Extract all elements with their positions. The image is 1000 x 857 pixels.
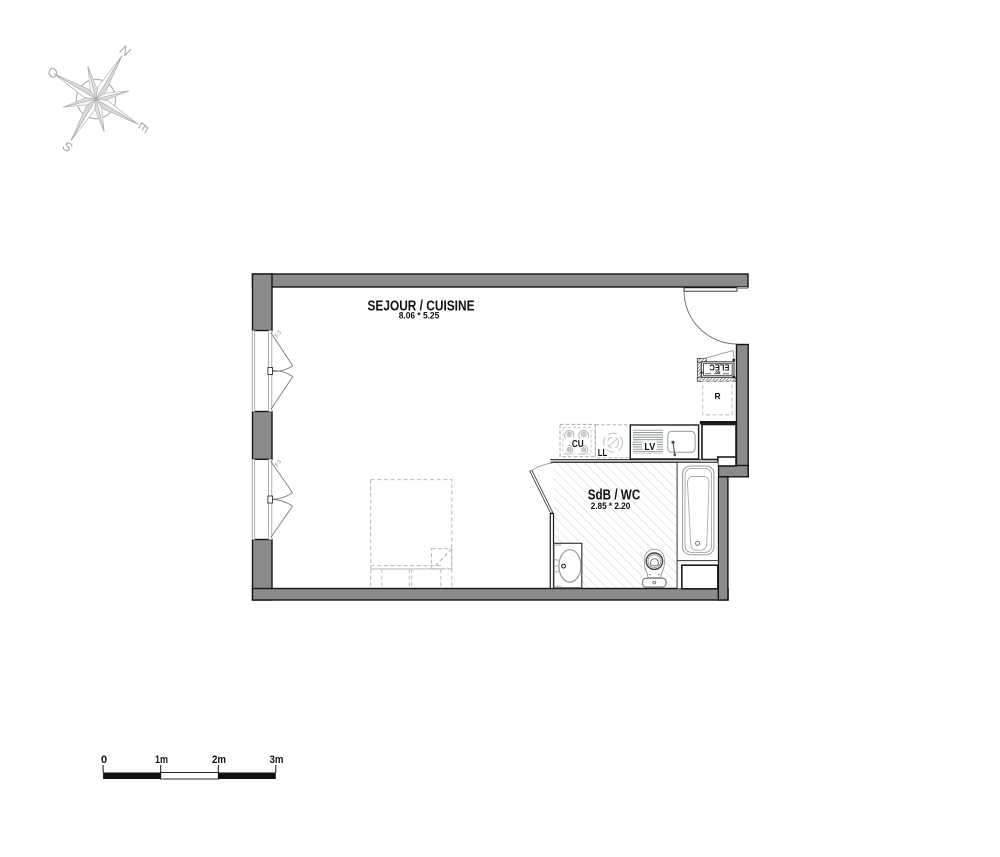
svg-text:R: R [715, 391, 721, 401]
svg-text:60: 60 [715, 370, 721, 375]
svg-text:3m: 3m [270, 754, 284, 766]
svg-text:2.85 * 2.20: 2.85 * 2.20 [591, 501, 631, 511]
svg-text:0: 0 [101, 754, 107, 766]
svg-text:LL: LL [598, 448, 608, 459]
svg-text:8.06 * 5.25: 8.06 * 5.25 [399, 311, 440, 321]
svg-text:2m: 2m [212, 754, 226, 766]
svg-text:1m: 1m [155, 754, 168, 766]
svg-text:CU: CU [572, 439, 584, 450]
svg-text:LV: LV [644, 442, 655, 453]
